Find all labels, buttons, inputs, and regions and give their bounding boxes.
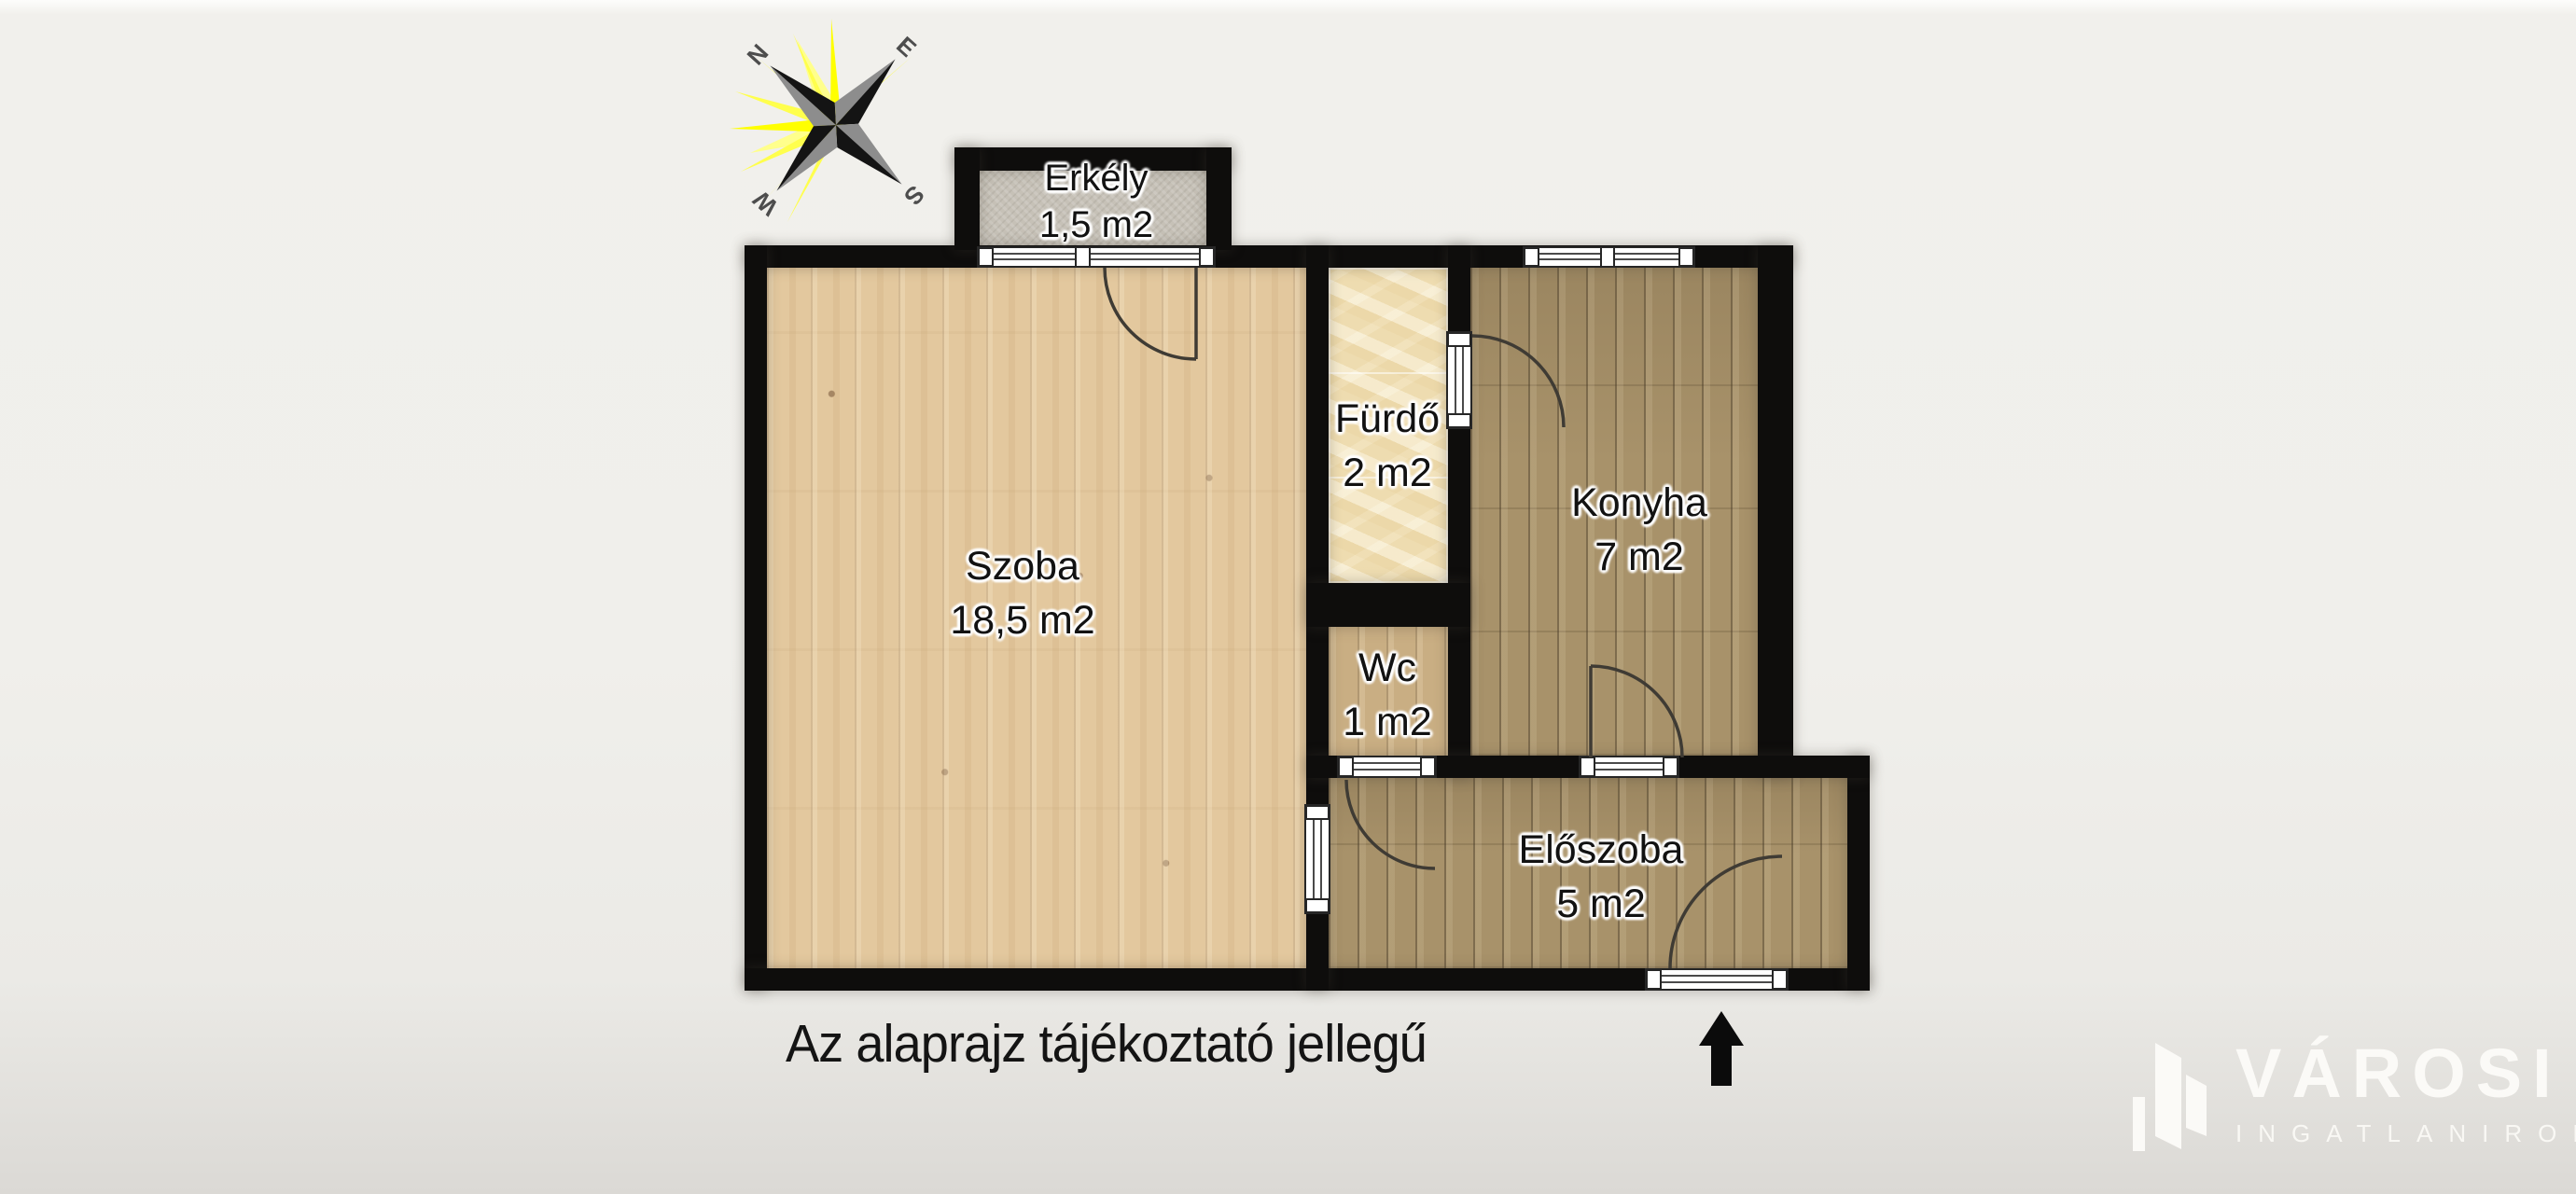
room-area: 1 m2 <box>1229 695 1546 749</box>
room-label-erkely: Erkély 1,5 m2 <box>938 155 1255 248</box>
entrance-arrow-icon <box>1699 1011 1744 1086</box>
room-label-wc: Wc 1 m2 <box>1229 641 1546 749</box>
room-name: Konyha <box>1481 476 1798 530</box>
compass-letter-w: W <box>747 185 784 221</box>
room-name: Előszoba <box>1442 823 1760 877</box>
brand-name: VÁROSI <box>2235 1037 2576 1110</box>
compass-letter-n: N <box>742 38 774 70</box>
compass-letter-e: E <box>891 31 922 62</box>
floorplan-page: N E S W Erkély 1,5 m2 Szoba 18,5 m2 Fürd… <box>0 0 2576 1194</box>
room-label-szoba: Szoba 18,5 m2 <box>864 539 1181 647</box>
room-area: 7 m2 <box>1481 530 1798 584</box>
brand-subtitle: INGATLANIRODA <box>2235 1119 2576 1148</box>
room-area: 1,5 m2 <box>938 201 1255 248</box>
room-name: Fürdő <box>1229 392 1546 446</box>
room-label-eloszoba: Előszoba 5 m2 <box>1442 823 1760 931</box>
disclaimer-caption: Az alaprajz tájékoztató jellegű <box>786 1013 1427 1075</box>
room-area: 18,5 m2 <box>864 593 1181 647</box>
room-name: Erkély <box>938 155 1255 201</box>
room-name: Wc <box>1229 641 1546 695</box>
room-area: 5 m2 <box>1442 877 1760 931</box>
compass-letter-s: S <box>898 180 930 211</box>
brand-logo: VÁROSI INGATLANIRODA <box>2133 1037 2576 1157</box>
room-name: Szoba <box>864 539 1181 593</box>
room-label-konyha: Konyha 7 m2 <box>1481 476 1798 584</box>
brand-building-icon <box>2133 1037 2211 1157</box>
compass-rose-icon: N E S W <box>728 7 952 231</box>
